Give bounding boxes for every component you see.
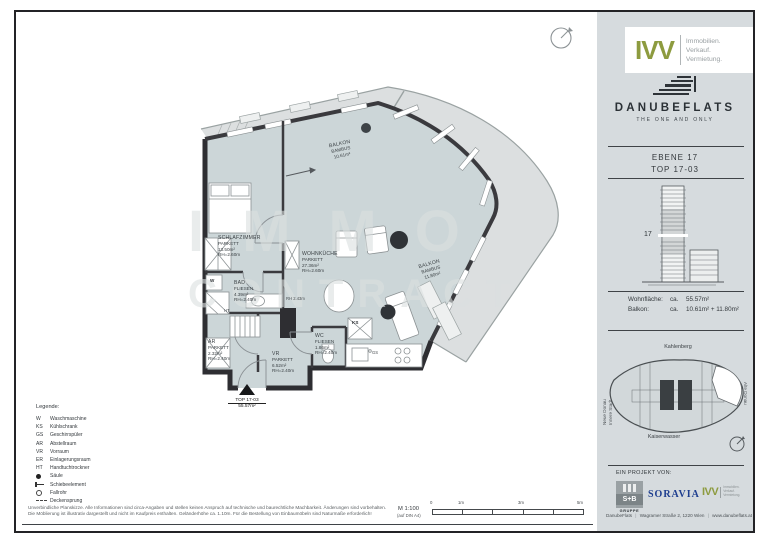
ivv-partner-divider <box>720 487 721 498</box>
legend-term: Einlagerungsraum <box>50 457 91 463</box>
legend-title: Legende: <box>36 404 156 410</box>
ivv-partner-logo: IVV Immobilien. Verkauf. Vermietung. <box>702 486 740 498</box>
saeule-circle-icon <box>36 474 50 479</box>
ivv-line: Vermietung. <box>686 55 722 64</box>
room-height: RH=2.60m <box>302 268 338 273</box>
room-label-vr: VR PARKETT 6.52m² RH=2.40m <box>272 352 294 373</box>
map-label-kaiserwasser: Kaiserwasser <box>604 434 724 440</box>
legend: Legende: WWaschmaschine KSKühlschrank GS… <box>36 404 156 505</box>
tower-floor-marker: 17 <box>644 231 652 238</box>
area-row-balkon: Balkon: ca. 10.61m² + 11.80m² <box>628 306 746 313</box>
room-height-note: RH 2.43m <box>286 296 305 301</box>
legend-abbr: KS <box>36 424 50 430</box>
legend-abbr: GS <box>36 432 50 438</box>
brand-name: DANUBEFLATS <box>602 102 748 114</box>
legend-abbr: ER <box>36 457 50 463</box>
legend-item: Fallrohr <box>36 489 156 497</box>
legend-item: EREinlagerungsraum <box>36 456 156 464</box>
unit-level: EBENE 17 <box>602 153 748 162</box>
scale-label: M 1:100 <box>398 506 419 512</box>
site-map <box>604 356 752 456</box>
sb-gruppe-name: S+B <box>616 494 643 505</box>
ivv-logo-divider <box>680 35 681 65</box>
map-label-innere-stadt: Innere Stadt <box>608 399 614 425</box>
entry-total-area: 55.57m² <box>228 404 266 409</box>
room-floor: FLIESEN <box>234 286 256 291</box>
fridge-label: KS <box>352 320 358 325</box>
map-label-neue-donau: Neue Donau <box>602 399 608 425</box>
legend-item: KSKühlschrank <box>36 423 156 431</box>
legend-term: Waschmaschine <box>50 416 87 422</box>
area-ca: ca. <box>670 296 686 303</box>
room-label-wc: WC FLIESEN 1.86m² RH=2.40m <box>315 334 337 355</box>
room-label-wohnkueche: WOHNKÜCHE PARKETT 27.36m² RH=2.60m <box>302 252 338 273</box>
area-row-wohnflaeche: Wohnfläche: ca. 55.57m² <box>628 296 746 303</box>
legend-item: ARAbstellraum <box>36 440 156 448</box>
ivv-partner-text: Immobilien. Verkauf. Vermietung. <box>723 486 740 497</box>
ivv-logo: IVV <box>635 37 674 63</box>
map-label-kahlenberg: Kahlenberg <box>604 344 752 350</box>
legend-term: Säule <box>50 473 63 479</box>
room-height: RH=2.40m <box>315 350 337 355</box>
legend-term: Abstellraum <box>50 441 76 447</box>
room-floor: FLIESEN <box>315 339 337 344</box>
legend-item: VRVorraum <box>36 448 156 456</box>
area-label: Wohnfläche: <box>628 296 670 303</box>
scale-tick-3m: 3m <box>518 500 524 505</box>
sidebar-divider <box>608 465 744 466</box>
room-height: RH=2.40m <box>234 297 256 302</box>
danubeflats-tower-icon <box>653 76 697 97</box>
sidebar-divider <box>608 146 744 147</box>
fallrohr-ring-icon <box>36 490 50 496</box>
contact-name: DanubeFlats <box>606 513 632 518</box>
disclaimer-line-2: Die Möblierung ist illustrativ dargestel… <box>28 511 400 517</box>
room-height: RH=2.60m <box>218 252 261 257</box>
tower-illustration <box>618 184 738 288</box>
floorplan-sheet: IMMO CONTRACT SCHLAFZIMMER PARKETT 13.50… <box>0 0 770 544</box>
project-heading: EIN PROJEKT VON: <box>616 470 672 476</box>
contact-line: DanubeFlats | Wagramer Straße 2, 1220 Wi… <box>606 513 752 518</box>
towel-dryer-label: HT <box>224 308 230 313</box>
legend-term: Schiebeelement <box>50 482 86 488</box>
washer-label: W <box>210 278 214 283</box>
brand-tagline: THE ONE AND ONLY <box>602 117 748 123</box>
map-compass-icon <box>730 436 745 451</box>
north-compass-icon <box>551 27 573 48</box>
legend-item: Säule <box>36 472 156 480</box>
area-value: 55.57m² <box>686 296 709 303</box>
legend-item: HTHandtuchtrockner <box>36 464 156 472</box>
contact-web: www.danubeflats.at <box>712 513 752 518</box>
shaft-wall <box>280 308 296 338</box>
sidebar-divider <box>608 178 744 179</box>
ivv-line: Verkauf. <box>686 46 722 55</box>
soravia-logo: SORAVIA <box>648 489 700 500</box>
room-floor: PARKETT <box>208 345 230 350</box>
legend-abbr: W <box>36 416 50 422</box>
map-label-west: Neue Donau Innere Stadt <box>602 399 613 425</box>
legend-term: Deckensprung <box>50 498 82 504</box>
room-floor: PARKETT <box>272 357 294 362</box>
sidebar-divider <box>608 291 744 292</box>
sb-gruppe-bars-icon <box>616 481 643 492</box>
unit-top-number: TOP 17-03 <box>602 165 748 174</box>
legend-abbr: VR <box>36 449 50 455</box>
decken-dash-icon <box>36 500 50 501</box>
dishwasher-label: GS <box>372 350 378 355</box>
danubeflats-tower-icon-spire <box>694 76 696 92</box>
ivv-line: Immobilien. <box>686 37 722 46</box>
contact-separator: | <box>708 513 709 518</box>
legend-item: GSGeschirrspüler <box>36 431 156 439</box>
scale-tick-5m: 5m <box>577 500 583 505</box>
area-value: 10.61m² + 11.80m² <box>686 306 739 313</box>
disclaimer: Unverbindliche Planskizze. Alle Informat… <box>28 505 400 516</box>
legend-item: Schiebeelement <box>36 481 156 489</box>
legend-term: Geschirrspüler <box>50 432 83 438</box>
ivv-partner-line: Vermietung. <box>723 494 740 498</box>
map-label-alte-donau: Alte Donau <box>743 382 748 405</box>
sidebar-divider <box>608 330 744 331</box>
legend-term: Fallrohr <box>50 490 67 496</box>
legend-term: Kühlschrank <box>50 424 78 430</box>
room-height: RH=2.40m <box>272 368 294 373</box>
scale-tick-1m: 1m <box>458 500 464 505</box>
legend-item: WWaschmaschine <box>36 415 156 423</box>
ivv-logo-box: IVV Immobilien. Verkauf. Vermietung. <box>625 27 753 73</box>
room-label-bad: BAD FLIESEN 4.39m² RH=2.40m <box>234 281 256 302</box>
sb-gruppe-logo: S+B <box>616 481 643 508</box>
contact-address: Wagramer Straße 2, 1220 Wien <box>640 513 705 518</box>
scale-tick-0: 0 <box>430 500 432 505</box>
room-label-schlafzimmer: SCHLAFZIMMER PARKETT 13.50m² RH=2.60m <box>218 236 261 257</box>
area-ca: ca. <box>670 306 686 313</box>
slide-element-icon <box>36 484 50 486</box>
legend-abbr: HT <box>36 465 50 471</box>
legend-abbr: AR <box>36 441 50 447</box>
footer-rule <box>22 524 593 525</box>
room-label-ar: AR PARKETT 2.32m² RH=2.40m <box>208 340 230 361</box>
ivv-logo-text: Immobilien. Verkauf. Vermietung. <box>686 37 722 64</box>
balcony-table <box>361 123 371 133</box>
legend-term: Handtuchtrockner <box>50 465 89 471</box>
contact-separator: | <box>635 513 636 518</box>
entry-label: TOP 17-03 55.57m² <box>228 398 266 409</box>
scale-note: (auf DIN A4) <box>397 513 421 518</box>
legend-term: Vorraum <box>50 449 69 455</box>
saeule-column <box>390 231 408 249</box>
scale-bar <box>432 509 584 515</box>
area-label: Balkon: <box>628 306 670 313</box>
saeule-column-2 <box>381 305 396 320</box>
room-height: RH=2.40m <box>208 356 230 361</box>
disclaimer-line-1: Unverbindliche Planskizze. Alle Informat… <box>28 505 400 511</box>
ivv-partner-name: IVV <box>702 486 718 498</box>
legend-item: Deckensprung <box>36 497 156 505</box>
